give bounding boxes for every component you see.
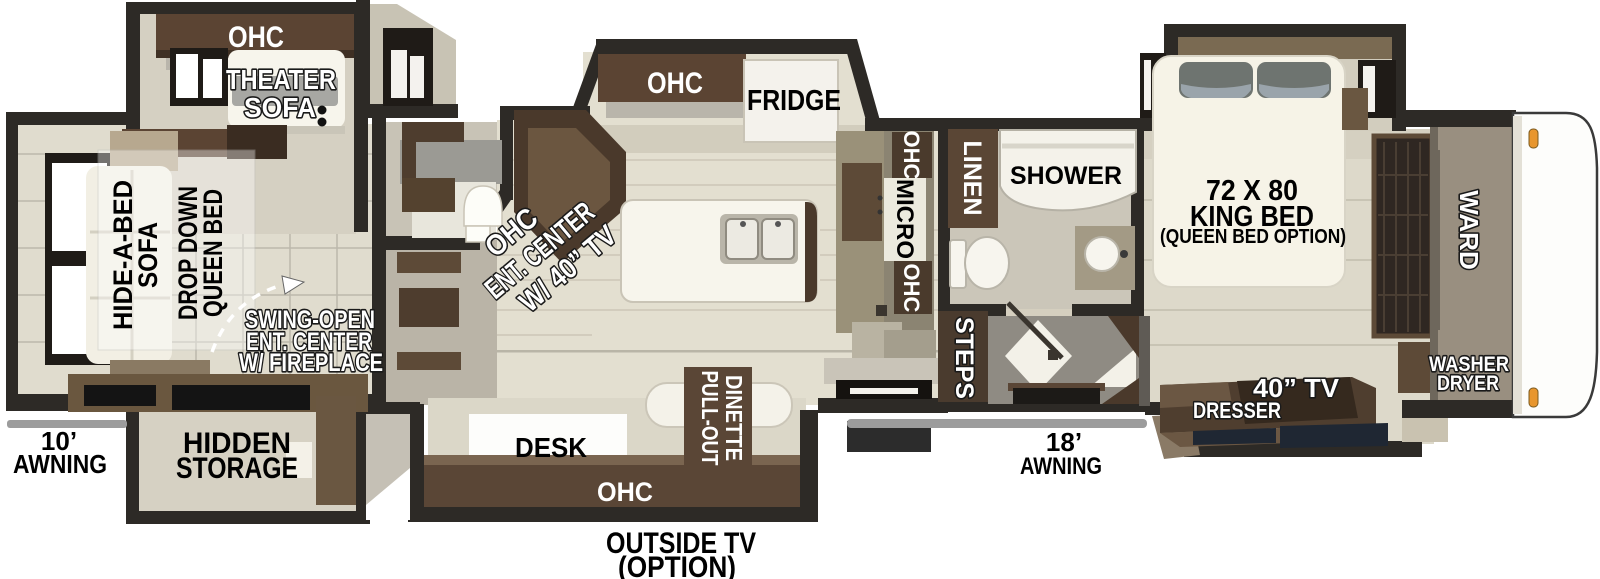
svg-text:OHC: OHC: [899, 264, 924, 313]
svg-text:MICRO: MICRO: [891, 179, 918, 259]
svg-text:PULL-OUT: PULL-OUT: [697, 371, 723, 466]
svg-text:DINETTE: DINETTE: [721, 375, 747, 461]
svg-text:SOFA: SOFA: [244, 92, 316, 123]
svg-text:OHC: OHC: [597, 477, 653, 507]
svg-text:STEPS: STEPS: [950, 317, 978, 399]
svg-text:OHC: OHC: [647, 67, 703, 100]
svg-text:QUEEN BED: QUEEN BED: [198, 189, 228, 317]
svg-text:DRYER: DRYER: [1437, 372, 1499, 395]
svg-text:SOFA: SOFA: [133, 222, 163, 288]
svg-text:AWNING: AWNING: [1020, 453, 1102, 480]
svg-text:OHC: OHC: [228, 21, 284, 54]
svg-text:DESK: DESK: [515, 432, 587, 463]
svg-text:SHOWER: SHOWER: [1010, 162, 1122, 190]
svg-text:STORAGE: STORAGE: [176, 452, 298, 485]
svg-text:OHC: OHC: [899, 131, 924, 180]
svg-text:WARD: WARD: [1454, 190, 1484, 269]
svg-text:DRESSER: DRESSER: [1193, 398, 1281, 423]
svg-text:(OPTION): (OPTION): [618, 551, 736, 579]
svg-text:(QUEEN BED OPTION): (QUEEN BED OPTION): [1160, 226, 1346, 248]
svg-text:FRIDGE: FRIDGE: [747, 85, 841, 117]
svg-text:LINEN: LINEN: [958, 141, 986, 216]
svg-text:THEATER: THEATER: [226, 64, 336, 95]
svg-text:W/ FIREPLACE: W/ FIREPLACE: [239, 349, 383, 377]
svg-text:AWNING: AWNING: [13, 449, 107, 479]
